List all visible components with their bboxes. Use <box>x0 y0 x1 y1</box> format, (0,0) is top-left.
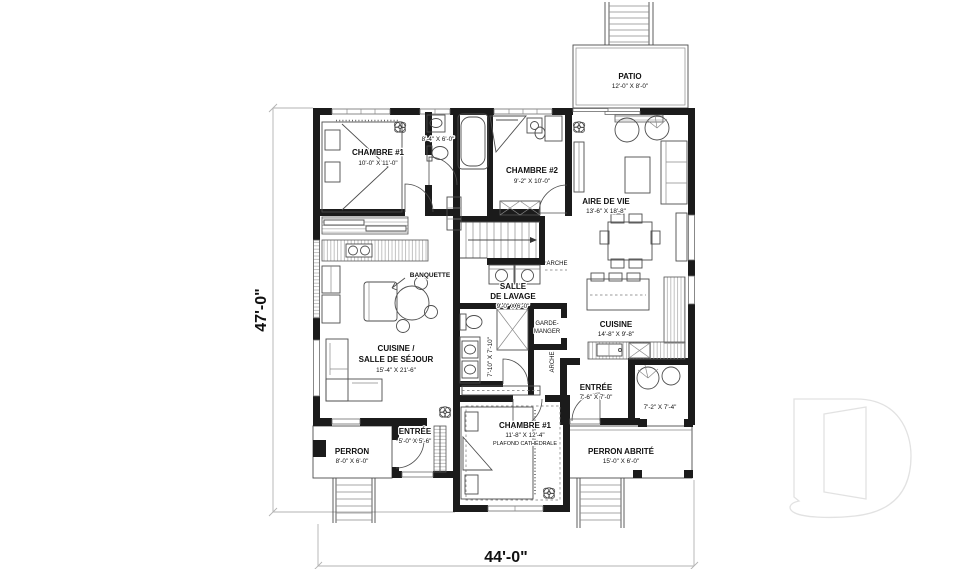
label-patio-name: PATIO <box>618 72 641 81</box>
floor-plan-drawing: 47'-0" 44'-0" <box>0 0 960 569</box>
label-entree-droite-dims: 7'-6" X 7'-0" <box>580 394 613 401</box>
cuisine-right-fixtures <box>587 273 685 359</box>
label-chambre1-upper-name: CHAMBRE #1 <box>352 148 405 157</box>
patio-deck <box>573 2 688 108</box>
closet-chambre1-upper <box>322 217 408 234</box>
label-chambre1-lower-note: PLAFOND CATHÉDRALE <box>493 440 557 447</box>
label-salle-lavage-name1: SALLE <box>500 282 527 291</box>
label-bain-droit-dims: 7'-10" X 7'-10" <box>487 337 494 377</box>
label-entree-gauche-name: ENTRÉE <box>399 427 432 436</box>
label-salle-lavage-dims: 9'-0" X 6'-0" <box>497 303 530 310</box>
floor-plan-page: 47'-0" 44'-0" <box>0 0 960 569</box>
label-garde-manger-1: GARDE- <box>535 321 558 327</box>
dim-width-label: 44'-0" <box>484 549 527 566</box>
vestiaire-chairs <box>637 365 680 389</box>
label-salle-lavage-name2: DE LAVAGE <box>490 292 536 301</box>
label-chambre1-lower-name: CHAMBRE #1 <box>499 421 552 430</box>
label-arche-escalier: ARCHE <box>546 261 567 267</box>
label-chambre1-upper-dims: 10'-0" X 11'-0" <box>358 160 397 167</box>
label-perron-name: PERRON <box>335 447 369 456</box>
label-cuisine-droite-dims: 14'-8" X 9'-8" <box>598 331 634 338</box>
label-patio-dims: 12'-0" X 8'-0" <box>612 83 648 90</box>
cuisine-sejour-fixtures <box>322 197 461 472</box>
label-cuisine-sejour-2: SALLE DE SÉJOUR <box>359 355 434 364</box>
label-cuisine-sejour-1: CUISINE / <box>378 344 416 353</box>
label-perron-dims: 8'-0" X 6'-0" <box>336 458 369 465</box>
label-garde-manger-2: MANGER <box>534 329 561 335</box>
label-chambre1-lower-dims: 11'-8" X 12'-4" <box>505 432 544 439</box>
perron-deck <box>313 426 392 523</box>
label-arche-cuisine: ARCHE <box>550 351 556 372</box>
label-entree-droite-name: ENTRÉE <box>580 383 613 392</box>
label-entree-gauche-dims: 5'-0" X 5'-6" <box>399 438 432 445</box>
label-perron-abrite-name: PERRON ABRITÉ <box>588 447 655 456</box>
label-aire-de-vie-dims: 13'-6" X 18'-8" <box>586 208 626 215</box>
aire-de-vie-furniture <box>574 115 687 268</box>
label-chambre2-dims: 9'-2" X 10'-0" <box>514 178 550 185</box>
d-watermark-logo <box>790 399 911 517</box>
room-labels: CHAMBRE #1 10'-0" X 11'-0" 8'-4" X 6'-0"… <box>335 72 677 465</box>
label-vestiaire-dims: 7'-2" X 7'-4" <box>644 404 677 411</box>
label-cuisine-sejour-dims: 15'-4" X 21'-6" <box>376 367 416 374</box>
label-perron-abrite-dims: 15'-0" X 6'-0" <box>603 458 639 465</box>
bathroom-right-fixtures <box>460 309 528 383</box>
dim-height-label: 47'-0" <box>253 288 270 331</box>
label-aire-de-vie-name: AIRE DE VIE <box>582 197 630 206</box>
label-chambre2-name: CHAMBRE #2 <box>506 166 559 175</box>
label-cuisine-droite-name: CUISINE <box>600 320 633 329</box>
perron-abrite-deck <box>567 426 693 528</box>
label-banquette: BANQUETTE <box>410 272 451 279</box>
label-bain-gauche-dims: 8'-4" X 6'-0" <box>422 136 455 143</box>
